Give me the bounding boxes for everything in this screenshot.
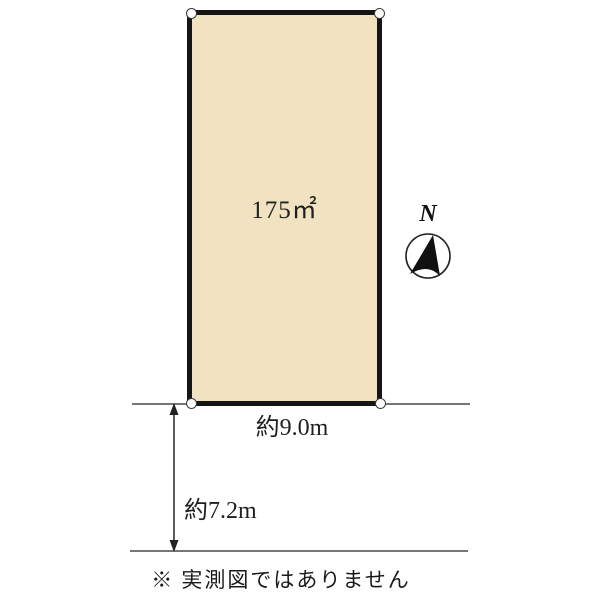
depth-dimension-label: 約7.2m	[184, 490, 257, 525]
land-plot-diagram: 175㎡ 約9.0m 約7.2m N ※ 実測図ではありません	[0, 0, 600, 600]
frontage-dimension-label: 約9.0m	[187, 407, 397, 442]
plot-area-label: 175㎡	[187, 190, 382, 226]
north-label: N	[404, 201, 452, 228]
north-arrow-icon	[404, 232, 452, 282]
corner-marker-top-right	[374, 8, 385, 19]
depth-dimension-arrow-icon	[166, 403, 182, 552]
disclaimer-text: ※ 実測図ではありません	[0, 564, 562, 594]
corner-marker-top-left	[186, 8, 197, 19]
